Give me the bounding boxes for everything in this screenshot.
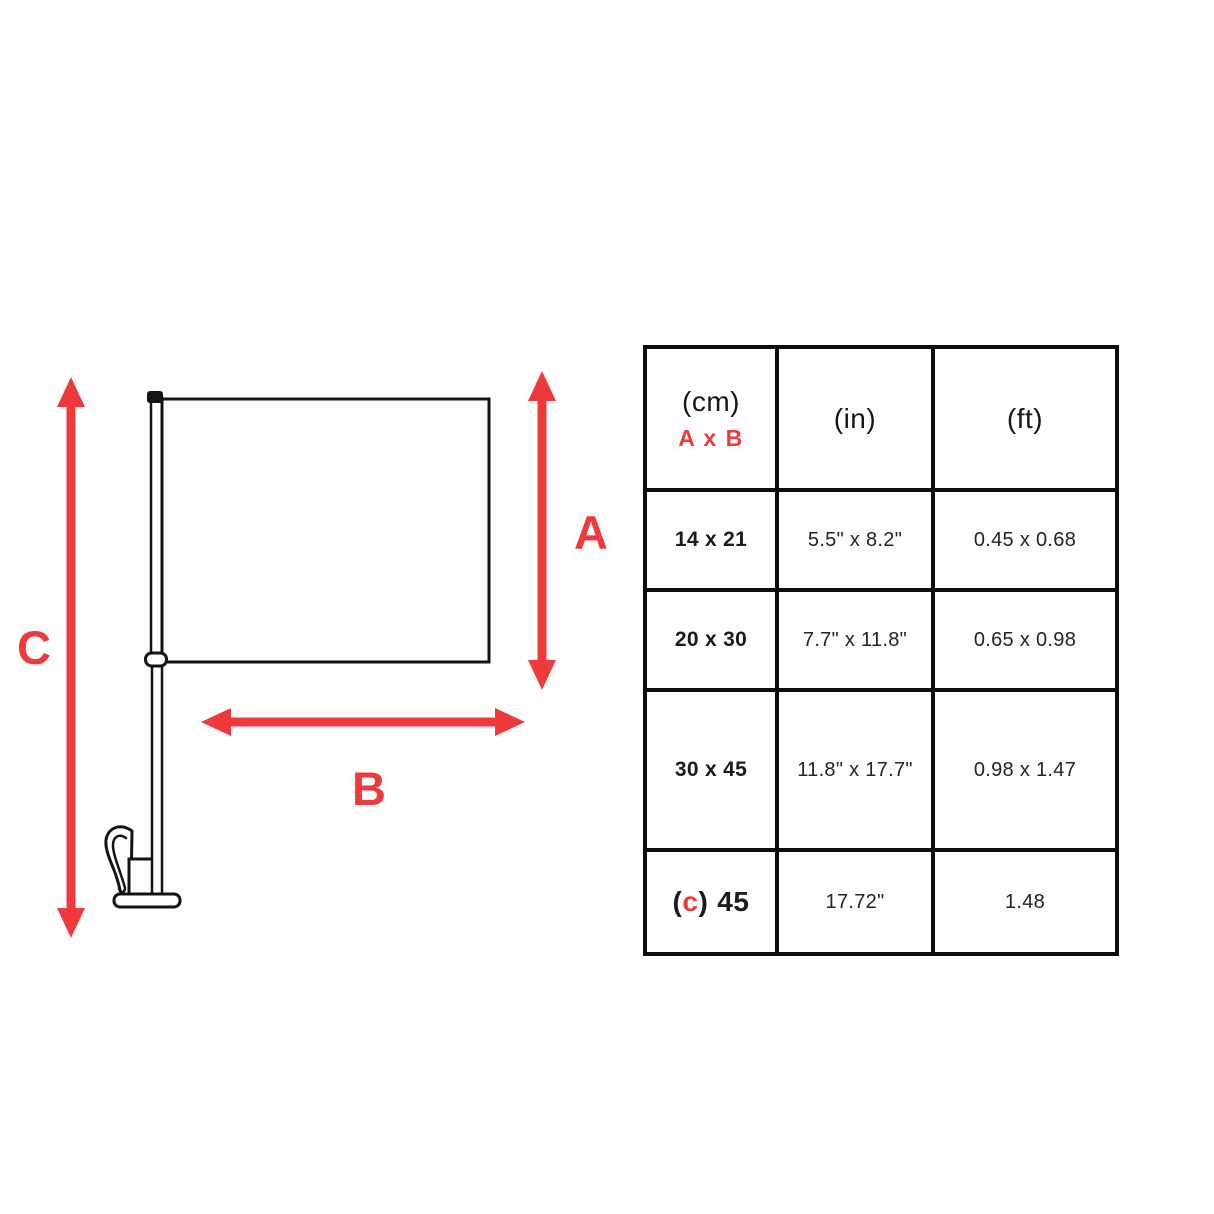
header-axb-label: A x B: [678, 425, 743, 452]
dimension-label-b: B: [352, 762, 386, 815]
table-row-size-ft: 0.98 x 1.47: [935, 692, 1115, 848]
flag-panel: [162, 399, 489, 662]
table-row-size-in: 7.7" x 11.8": [779, 592, 931, 688]
table-row-size-in: 11.8" x 17.7": [779, 692, 931, 848]
table-row-size-cm: 30 x 45: [647, 692, 775, 848]
flag-pole-upper: [151, 397, 162, 657]
flag-window-clip: [106, 827, 155, 897]
table-row-size-in: 5.5" x 8.2": [779, 492, 931, 588]
measure-arrow-b: [201, 708, 525, 736]
header-cell-ft: (ft): [935, 349, 1115, 488]
c-paren-close: ): [698, 886, 708, 918]
header-cell-in: (in): [779, 349, 931, 488]
header-cell-cm: (cm) A x B: [647, 349, 775, 488]
clip-base-bar: [114, 894, 180, 907]
car-flag-size-chart: C A B: [0, 0, 1214, 1214]
flag-pole-lower: [152, 666, 162, 896]
size-table: (cm) A x B (in) (ft) 14 x 21 5.5" x 8.2"…: [643, 345, 1119, 956]
pole-top-cap: [147, 391, 163, 403]
dimension-label-c: C: [17, 621, 51, 674]
table-row-size-cm: 20 x 30: [647, 592, 775, 688]
table-row-pole-in: 17.72": [779, 852, 931, 952]
measure-arrow-a: [528, 371, 556, 690]
c-paren-open: (: [673, 886, 683, 918]
c-letter: c: [682, 886, 698, 918]
table-row-size-ft: 0.65 x 0.98: [935, 592, 1115, 688]
measure-arrow-c: [57, 377, 85, 938]
car-flag-illustration: [106, 391, 489, 907]
table-row-size-ft: 0.45 x 0.68: [935, 492, 1115, 588]
header-cm-unit: (cm): [682, 386, 740, 418]
dimension-label-a: A: [574, 506, 608, 559]
pole-collar: [146, 653, 167, 666]
table-row-pole-cm: ( c ) 45: [647, 852, 775, 952]
c-value: 45: [717, 886, 749, 918]
table-row-pole-ft: 1.48: [935, 852, 1115, 952]
table-row-size-cm: 14 x 21: [647, 492, 775, 588]
flag-dimension-diagram: C A B: [0, 0, 640, 1214]
